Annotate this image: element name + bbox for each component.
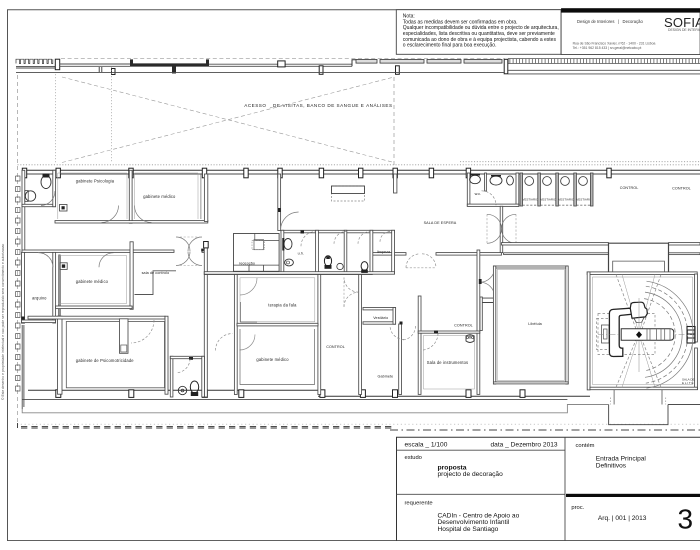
svg-text:VESTIARIO: VESTIARIO bbox=[540, 198, 557, 202]
svg-text:data _ Dezembro 2013: data _ Dezembro 2013 bbox=[491, 441, 558, 448]
svg-text:Sala de instrumentos: Sala de instrumentos bbox=[427, 360, 468, 365]
svg-text:requerente: requerente bbox=[405, 500, 433, 506]
svg-text:3: 3 bbox=[678, 504, 694, 535]
svg-text:VESTIARIO: VESTIARIO bbox=[558, 198, 575, 202]
svg-text:Rua de São Francisco Xavier, n: Rua de São Francisco Xavier, nº62 - 1400… bbox=[573, 42, 656, 46]
svg-text:Arq. | 001 | 2013: Arq. | 001 | 2013 bbox=[598, 515, 647, 522]
svg-text:recepção: recepção bbox=[239, 261, 255, 265]
svg-text:ACESSO _DE-VISITAS, BANCO DE: ACESSO _DE-VISITAS, BANCO DE SANGUE E AN… bbox=[244, 102, 392, 108]
svg-text:o esclarecimento final para bo: o esclarecimento final para boa execução… bbox=[403, 43, 497, 49]
svg-text:Definitivos: Definitivos bbox=[596, 462, 627, 469]
svg-text:© Este desenho e propriedade i: © Este desenho e propriedade intelectual… bbox=[1, 244, 5, 400]
svg-text:arquivo: arquivo bbox=[32, 295, 47, 300]
svg-text:escala _ 1/100: escala _ 1/100 bbox=[405, 441, 448, 448]
svg-text:gabinete de Psicomotricidade: gabinete de Psicomotricidade bbox=[76, 358, 134, 363]
svg-text:sala de controlo: sala de controlo bbox=[142, 271, 170, 275]
svg-text:contém: contém bbox=[576, 443, 595, 449]
svg-text:Design de Interiores | Dec: Design de Interiores | Decoração bbox=[577, 19, 643, 24]
svg-text:SALA DE ESPERA: SALA DE ESPERA bbox=[424, 221, 457, 225]
svg-text:limpeza: limpeza bbox=[377, 250, 391, 254]
svg-text:CONTROL: CONTROL bbox=[620, 186, 639, 190]
svg-text:projecto de decoração: projecto de decoração bbox=[438, 471, 504, 478]
svg-text:gabinete médico: gabinete médico bbox=[76, 279, 109, 284]
svg-text:terapia da fala: terapia da fala bbox=[268, 303, 297, 308]
svg-text:Vestiário: Vestiário bbox=[373, 316, 388, 320]
svg-text:gabinete médico: gabinete médico bbox=[143, 194, 176, 199]
svg-text:Hospital de Santiago: Hospital de Santiago bbox=[438, 526, 499, 533]
svg-text:gabinete médico: gabinete médico bbox=[256, 357, 289, 362]
svg-text:CONTROL: CONTROL bbox=[672, 187, 691, 191]
svg-text:CONTROL: CONTROL bbox=[326, 345, 345, 349]
svg-text:gabinete Psicologia: gabinete Psicologia bbox=[76, 178, 115, 183]
svg-text:VESTIARIO: VESTIARIO bbox=[522, 198, 539, 202]
svg-text:CONTROL: CONTROL bbox=[454, 324, 473, 328]
svg-text:Libélula: Libélula bbox=[528, 322, 542, 326]
svg-text:Gabinete: Gabinete bbox=[378, 374, 394, 378]
svg-text:Tel.: +351 962 815 433 | sn.: Tel.: +351 962 815 433 | sn.geral@netcab… bbox=[573, 46, 642, 50]
svg-text:DESIGN DE INTERIORES E: DESIGN DE INTERIORES E bbox=[668, 28, 700, 32]
svg-text:E L I T E: E L I T E bbox=[682, 381, 693, 385]
svg-text:proc.: proc. bbox=[571, 505, 584, 511]
svg-text:estudo: estudo bbox=[405, 455, 422, 461]
svg-text:w.c.: w.c. bbox=[475, 192, 482, 196]
svg-text:u.h.: u.h. bbox=[298, 252, 305, 256]
